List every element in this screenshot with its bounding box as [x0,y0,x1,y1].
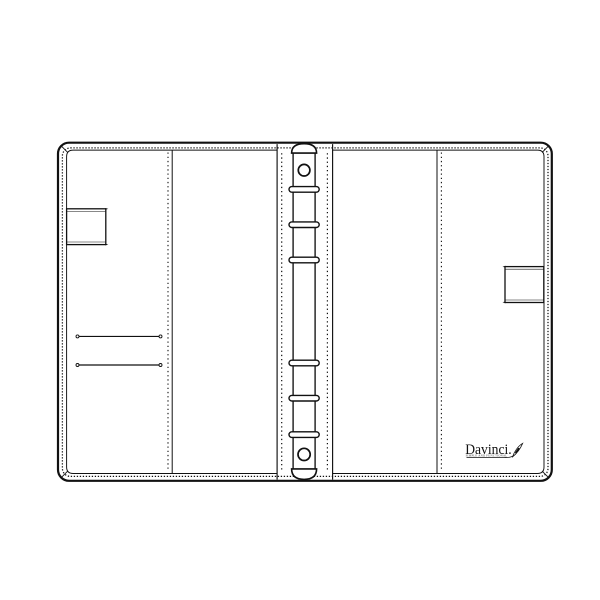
svg-text:SIMPLE AND FUNCTIONAL: SIMPLE AND FUNCTIONAL [466,453,508,457]
